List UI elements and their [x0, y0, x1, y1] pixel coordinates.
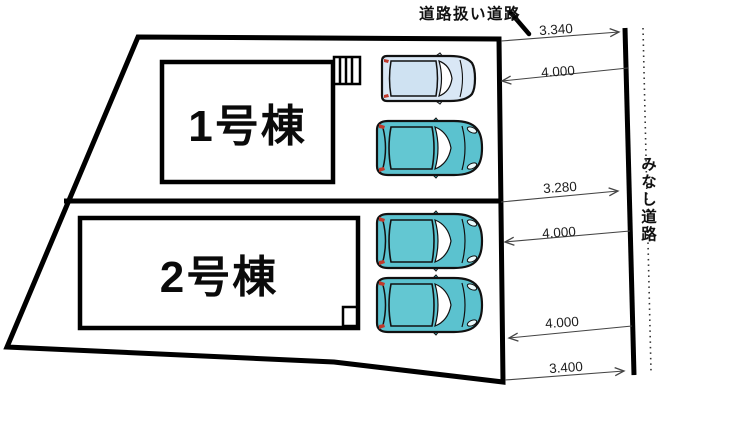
road-label-right: みなし道路	[636, 156, 658, 244]
site-plan-canvas: 1号棟 2号棟 道路扱い道路 みなし道路 3.340 4.000 3.280 4…	[0, 0, 740, 439]
building-1-label: 1号棟	[162, 62, 333, 182]
car-2-hatchback	[377, 118, 482, 178]
building-1-porch-hatch	[334, 57, 360, 84]
road-edge-line	[625, 28, 634, 375]
car-3-hatchback	[377, 211, 482, 271]
building-2-label: 2号棟	[80, 218, 358, 328]
road-label-top: 道路扱い道路	[419, 2, 521, 24]
car-4-hatchback	[377, 275, 482, 335]
car-1-van	[382, 53, 475, 104]
